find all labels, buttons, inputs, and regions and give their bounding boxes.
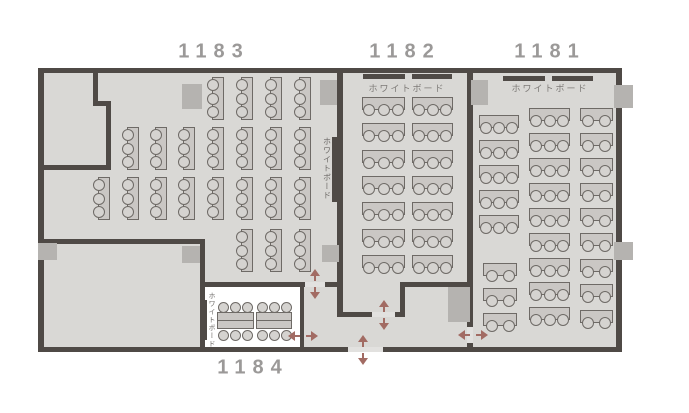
- chair-icon: [207, 179, 219, 191]
- chair-icon: [93, 206, 105, 218]
- chair-icon: [207, 79, 219, 91]
- chair-icon: [150, 129, 162, 141]
- chair-icon: [530, 140, 542, 152]
- chair-icon: [150, 179, 162, 191]
- chair-icon: [493, 172, 505, 184]
- chair-icon: [207, 156, 219, 168]
- chair-icon: [257, 302, 268, 313]
- chair-icon: [265, 143, 277, 155]
- pillar: [614, 242, 633, 260]
- chair-icon: [265, 206, 277, 218]
- chair-icon: [503, 270, 515, 282]
- chair-icon: [178, 143, 190, 155]
- chair-icon: [427, 157, 439, 169]
- chair-icon: [265, 258, 277, 270]
- wall: [400, 282, 405, 317]
- chair-icon: [530, 240, 542, 252]
- chair-icon: [413, 262, 425, 274]
- wall: [38, 68, 44, 352]
- chair-icon: [486, 295, 498, 307]
- chair-icon: [236, 93, 248, 105]
- chair-icon: [242, 302, 253, 313]
- chair-icon: [122, 156, 134, 168]
- chair-icon: [294, 93, 306, 105]
- chair-icon: [150, 206, 162, 218]
- chair-icon: [413, 209, 425, 221]
- chair-icon: [427, 130, 439, 142]
- chair-icon: [294, 129, 306, 141]
- chair-icon: [207, 93, 219, 105]
- chair-icon: [150, 143, 162, 155]
- chair-icon: [236, 206, 248, 218]
- chair-icon: [544, 190, 556, 202]
- chair-icon: [599, 240, 611, 252]
- chair-icon: [122, 143, 134, 155]
- whiteboard-label-1183: ホワイトボード: [322, 137, 333, 209]
- wall: [616, 68, 622, 352]
- chair-icon: [530, 314, 542, 326]
- chair-icon: [486, 270, 498, 282]
- chair-icon: [378, 183, 390, 195]
- chair-icon: [236, 245, 248, 257]
- chair-icon: [544, 289, 556, 301]
- chair-icon: [207, 206, 219, 218]
- chair-icon: [599, 115, 611, 127]
- chair-icon: [392, 262, 404, 274]
- whiteboard-bar: [412, 74, 452, 79]
- pillar: [322, 245, 339, 262]
- chair-icon: [544, 115, 556, 127]
- chair-icon: [427, 262, 439, 274]
- chair-icon: [480, 147, 492, 159]
- chair-icon: [599, 266, 611, 278]
- chair-icon: [503, 295, 515, 307]
- chair-icon: [413, 183, 425, 195]
- door-arrow-horizontal-icon: [458, 329, 488, 341]
- chair-icon: [427, 104, 439, 116]
- chair-icon: [544, 314, 556, 326]
- chair-icon: [544, 140, 556, 152]
- whiteboard-label-1181: ホワイトボード: [511, 82, 588, 95]
- chair-icon: [122, 129, 134, 141]
- chair-icon: [207, 193, 219, 205]
- chair-icon: [294, 79, 306, 91]
- chair-icon: [427, 183, 439, 195]
- chair-icon: [207, 129, 219, 141]
- chair-icon: [530, 289, 542, 301]
- chair-icon: [178, 193, 190, 205]
- chair-icon: [236, 156, 248, 168]
- chair-icon: [294, 206, 306, 218]
- chair-icon: [150, 193, 162, 205]
- island-table: [217, 320, 254, 329]
- wall: [467, 343, 473, 352]
- chair-icon: [378, 157, 390, 169]
- chair-icon: [413, 130, 425, 142]
- chair-icon: [392, 104, 404, 116]
- chair-icon: [544, 265, 556, 277]
- chair-icon: [265, 245, 277, 257]
- chair-icon: [178, 129, 190, 141]
- room-label-1184: 1184: [217, 357, 288, 380]
- chair-icon: [392, 209, 404, 221]
- chair-icon: [480, 172, 492, 184]
- chair-icon: [178, 206, 190, 218]
- wall: [38, 239, 205, 244]
- chair-icon: [265, 179, 277, 191]
- whiteboard-bar: [552, 76, 593, 81]
- chair-icon: [265, 79, 277, 91]
- chair-icon: [413, 104, 425, 116]
- chair-icon: [93, 179, 105, 191]
- chair-icon: [599, 140, 611, 152]
- chair-icon: [544, 165, 556, 177]
- wall: [383, 347, 622, 352]
- room-label-1182: 1182: [369, 41, 440, 64]
- chair-icon: [599, 317, 611, 329]
- chair-icon: [392, 130, 404, 142]
- chair-icon: [413, 157, 425, 169]
- chair-icon: [265, 231, 277, 243]
- whiteboard-bar: [503, 76, 545, 81]
- chair-icon: [122, 179, 134, 191]
- chair-icon: [378, 209, 390, 221]
- chair-icon: [218, 330, 229, 341]
- chair-icon: [599, 165, 611, 177]
- chair-icon: [265, 129, 277, 141]
- chair-icon: [265, 156, 277, 168]
- island-table: [256, 320, 292, 329]
- room-label-1181: 1181: [514, 41, 585, 64]
- wall: [337, 312, 372, 317]
- chair-icon: [294, 179, 306, 191]
- chair-icon: [236, 143, 248, 155]
- whiteboard-label-1182: ホワイトボード: [368, 82, 445, 95]
- chair-icon: [265, 106, 277, 118]
- chair-icon: [93, 193, 105, 205]
- chair-icon: [294, 245, 306, 257]
- pillar: [38, 243, 57, 260]
- chair-icon: [281, 302, 292, 313]
- chair-icon: [294, 156, 306, 168]
- chair-icon: [257, 330, 268, 341]
- room-label-1183: 1183: [178, 41, 249, 64]
- wall: [38, 165, 111, 170]
- chair-icon: [530, 190, 542, 202]
- chair-icon: [599, 190, 611, 202]
- whiteboard-label-1184: ホワイトボード: [206, 292, 216, 352]
- chair-icon: [269, 330, 280, 341]
- chair-icon: [392, 183, 404, 195]
- chair-icon: [392, 157, 404, 169]
- chair-icon: [427, 209, 439, 221]
- pillar: [320, 80, 337, 105]
- chair-icon: [294, 258, 306, 270]
- wall: [200, 282, 305, 287]
- chair-icon: [236, 231, 248, 243]
- chair-icon: [378, 236, 390, 248]
- chair-icon: [294, 106, 306, 118]
- chair-icon: [378, 262, 390, 274]
- chair-icon: [530, 215, 542, 227]
- chair-icon: [230, 330, 241, 341]
- chair-icon: [378, 104, 390, 116]
- chair-icon: [230, 302, 241, 313]
- door-arrow-vertical-icon: [378, 300, 390, 330]
- chair-icon: [236, 179, 248, 191]
- chair-icon: [480, 197, 492, 209]
- chair-icon: [269, 302, 280, 313]
- chair-icon: [236, 106, 248, 118]
- wall: [38, 68, 622, 73]
- chair-icon: [236, 258, 248, 270]
- chair-icon: [544, 215, 556, 227]
- wall: [325, 282, 343, 287]
- chair-icon: [413, 236, 425, 248]
- chair-icon: [236, 129, 248, 141]
- chair-icon: [530, 265, 542, 277]
- chair-icon: [392, 236, 404, 248]
- door-arrow-vertical-icon: [357, 335, 369, 365]
- chair-icon: [242, 330, 253, 341]
- chair-icon: [236, 193, 248, 205]
- pillar: [471, 80, 488, 105]
- chair-icon: [378, 130, 390, 142]
- chair-icon: [265, 193, 277, 205]
- chair-icon: [207, 106, 219, 118]
- pillar: [448, 287, 470, 322]
- floor-plan: 1183 1182 1181 1184 ホワイトボード ホワイトボード ホワイト…: [0, 0, 689, 413]
- chair-icon: [178, 179, 190, 191]
- chair-icon: [493, 122, 505, 134]
- pillar: [614, 85, 633, 108]
- chair-icon: [178, 156, 190, 168]
- chair-icon: [544, 240, 556, 252]
- chair-icon: [599, 215, 611, 227]
- chair-icon: [493, 197, 505, 209]
- chair-icon: [530, 115, 542, 127]
- chair-icon: [218, 302, 229, 313]
- whiteboard-bar: [332, 137, 337, 202]
- chair-icon: [294, 143, 306, 155]
- chair-icon: [530, 165, 542, 177]
- chair-icon: [480, 222, 492, 234]
- chair-icon: [207, 143, 219, 155]
- pillar: [182, 84, 202, 109]
- chair-icon: [427, 236, 439, 248]
- chair-icon: [480, 122, 492, 134]
- pillar: [182, 246, 200, 263]
- door-arrow-vertical-icon: [309, 269, 321, 299]
- chair-icon: [122, 193, 134, 205]
- chair-icon: [493, 222, 505, 234]
- chair-icon: [150, 156, 162, 168]
- door-arrow-horizontal-icon: [288, 330, 318, 342]
- chair-icon: [493, 147, 505, 159]
- chair-icon: [294, 193, 306, 205]
- chair-icon: [265, 93, 277, 105]
- wall: [106, 101, 111, 170]
- whiteboard-bar: [363, 74, 405, 79]
- chair-icon: [503, 320, 515, 332]
- chair-icon: [294, 231, 306, 243]
- chair-icon: [599, 291, 611, 303]
- chair-icon: [122, 206, 134, 218]
- wall: [337, 68, 343, 317]
- chair-icon: [236, 79, 248, 91]
